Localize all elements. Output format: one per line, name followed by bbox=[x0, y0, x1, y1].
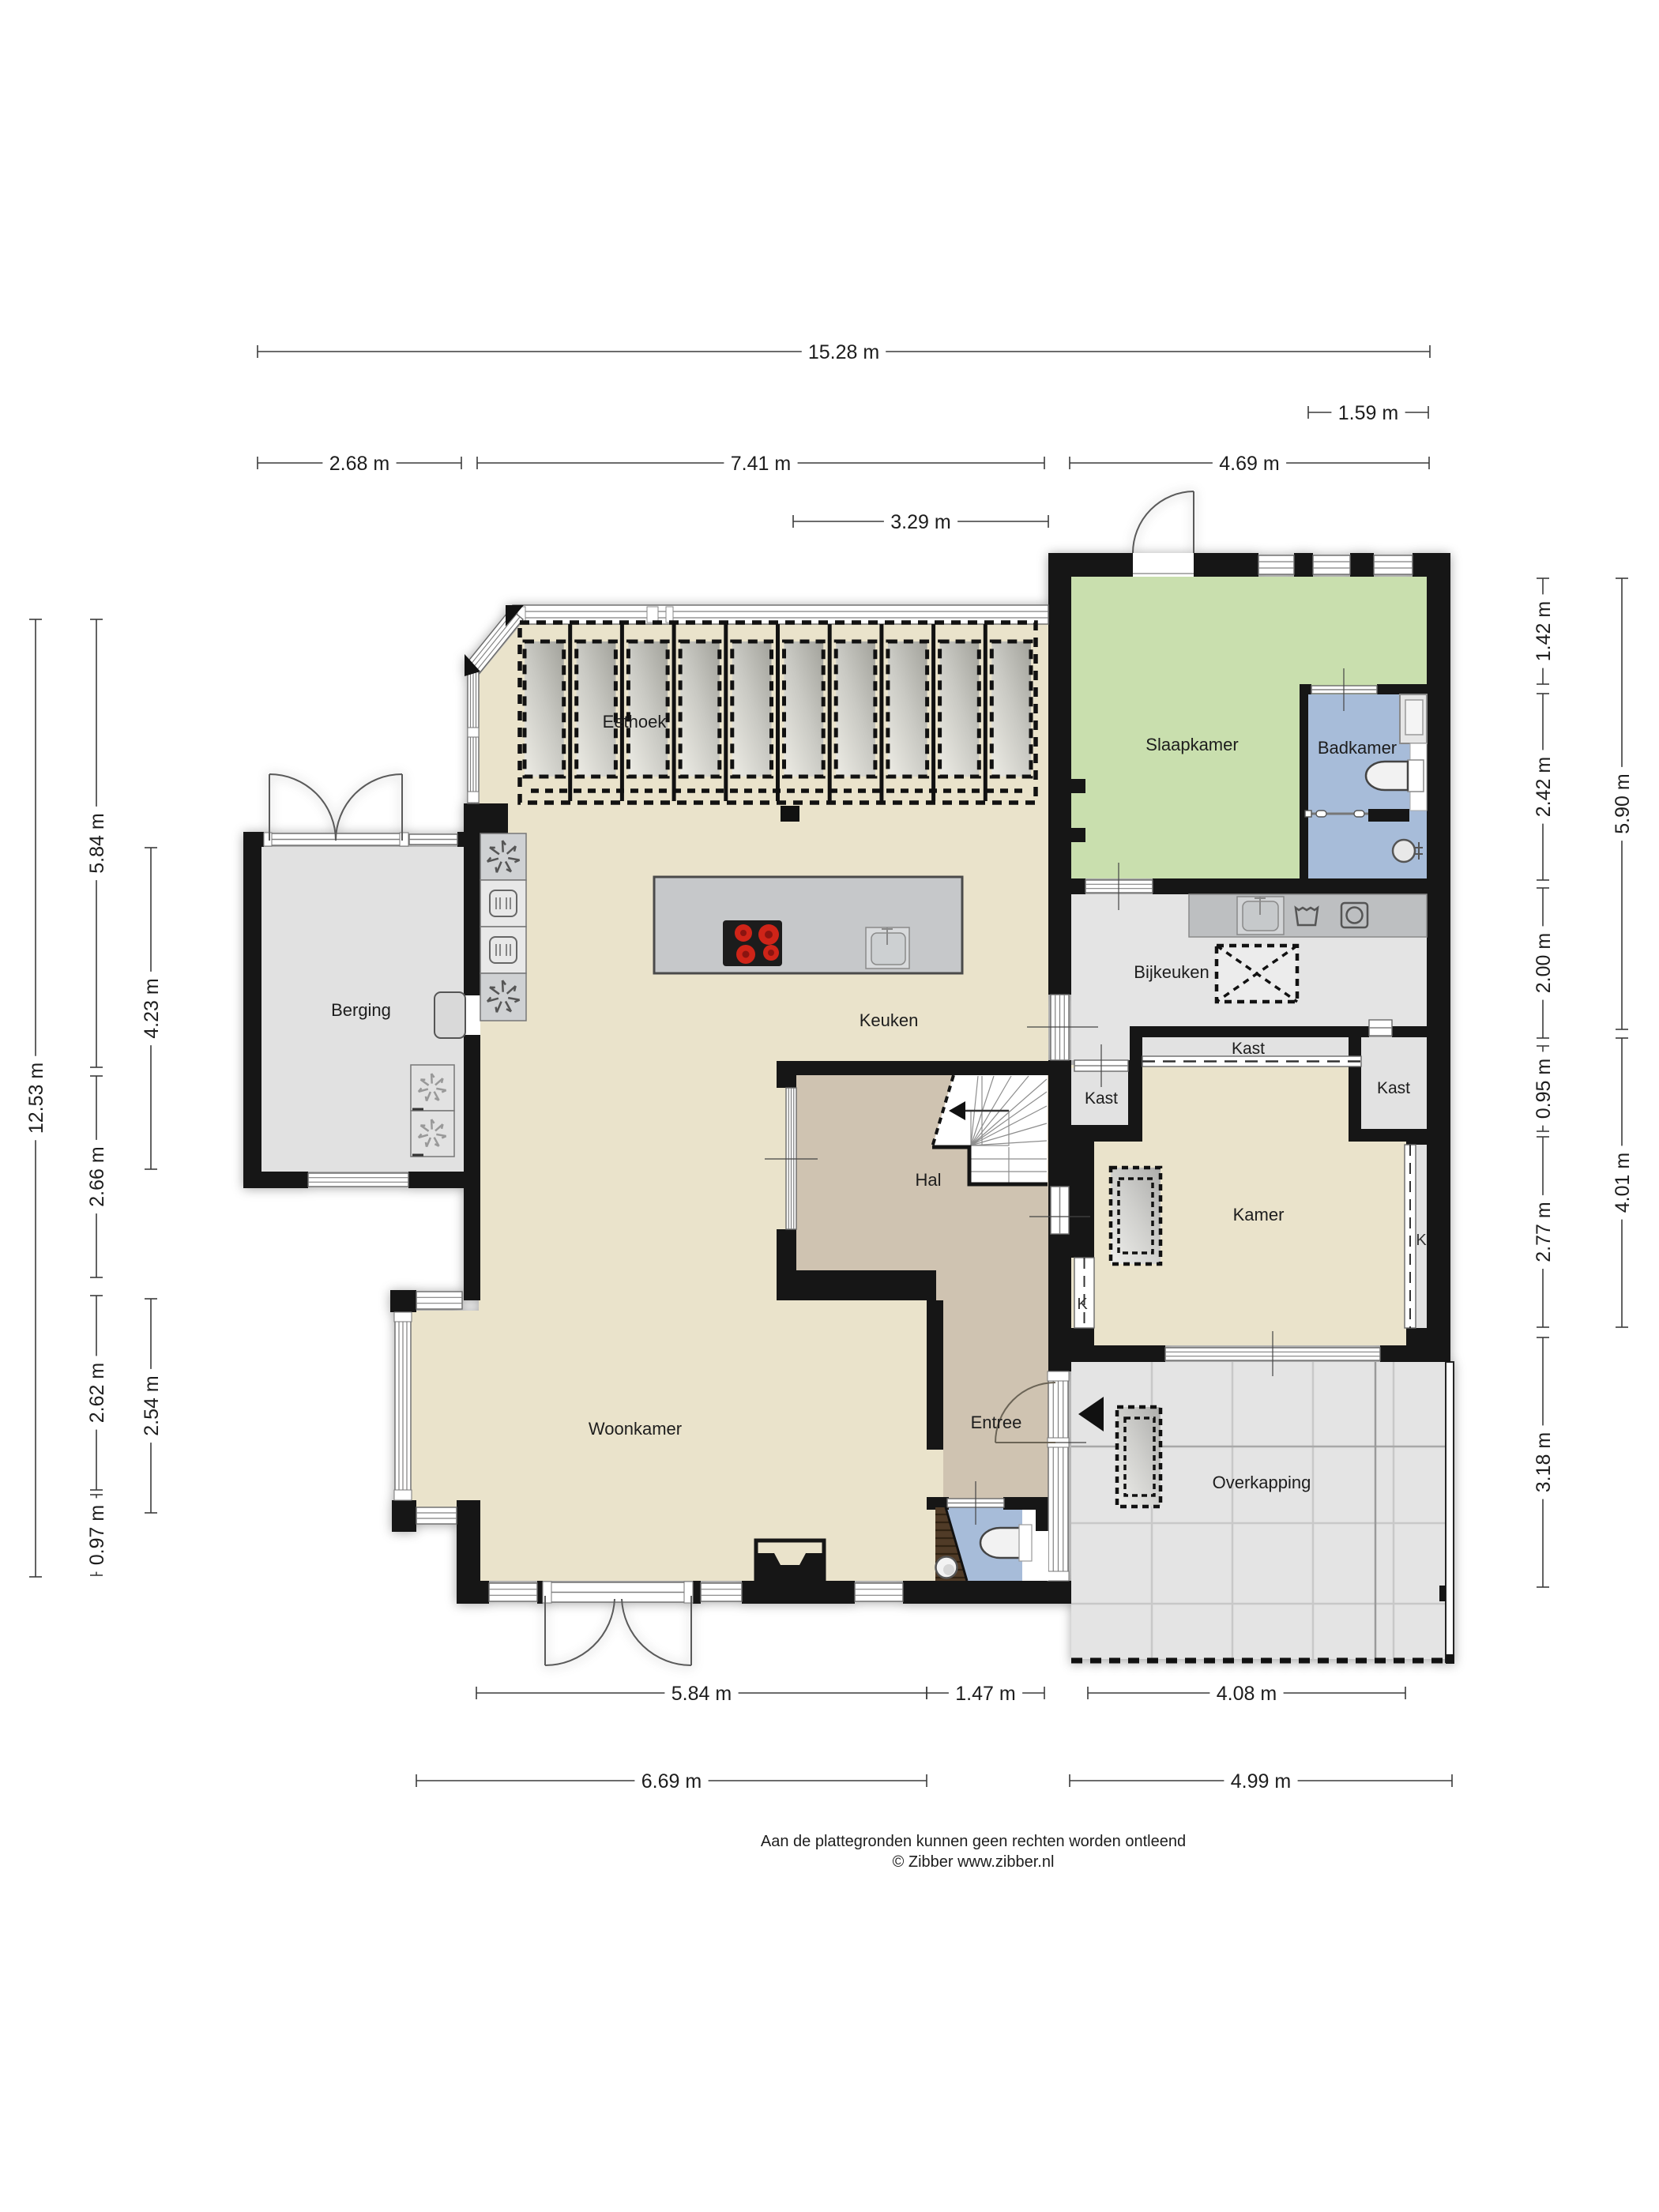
svg-text:2.68 m: 2.68 m bbox=[329, 453, 389, 475]
svg-text:K: K bbox=[1077, 1296, 1088, 1313]
svg-text:5.90 m: 5.90 m bbox=[1612, 773, 1634, 833]
svg-text:Overkapping: Overkapping bbox=[1213, 1473, 1311, 1492]
svg-text:2.54 m: 2.54 m bbox=[141, 1375, 163, 1435]
svg-text:Eethoek: Eethoek bbox=[603, 712, 668, 732]
svg-text:Kast: Kast bbox=[1085, 1089, 1118, 1108]
svg-text:Hal: Hal bbox=[915, 1170, 941, 1190]
svg-text:0.95 m: 0.95 m bbox=[1533, 1059, 1555, 1119]
svg-text:3.18 m: 3.18 m bbox=[1533, 1432, 1555, 1492]
svg-text:2.66 m: 2.66 m bbox=[86, 1146, 108, 1206]
svg-text:Woonkamer: Woonkamer bbox=[589, 1419, 682, 1439]
svg-text:Bijkeuken: Bijkeuken bbox=[1134, 962, 1209, 982]
svg-text:2.62 m: 2.62 m bbox=[86, 1363, 108, 1423]
svg-text:K: K bbox=[1416, 1232, 1427, 1249]
svg-text:1.47 m: 1.47 m bbox=[955, 1683, 1015, 1705]
svg-text:2.42 m: 2.42 m bbox=[1533, 757, 1555, 817]
svg-text:3.29 m: 3.29 m bbox=[890, 511, 950, 533]
svg-text:15.28 m: 15.28 m bbox=[808, 341, 879, 363]
svg-text:Keuken: Keuken bbox=[860, 1010, 919, 1030]
svg-text:4.69 m: 4.69 m bbox=[1219, 453, 1279, 475]
svg-text:2.77 m: 2.77 m bbox=[1533, 1202, 1555, 1262]
svg-text:Kamer: Kamer bbox=[1233, 1205, 1285, 1224]
svg-text:12.53 m: 12.53 m bbox=[25, 1063, 47, 1134]
svg-text:2.00 m: 2.00 m bbox=[1533, 933, 1555, 993]
svg-text:Berging: Berging bbox=[331, 1000, 391, 1020]
svg-text:4.99 m: 4.99 m bbox=[1231, 1770, 1291, 1793]
svg-text:Aan de plattegronden kunnen ge: Aan de plattegronden kunnen geen rechten… bbox=[761, 1833, 1186, 1850]
svg-text:4.08 m: 4.08 m bbox=[1217, 1683, 1277, 1705]
svg-text:Entree: Entree bbox=[971, 1413, 1022, 1432]
svg-text:5.84 m: 5.84 m bbox=[86, 813, 108, 873]
svg-text:1.42 m: 1.42 m bbox=[1533, 601, 1555, 661]
svg-text:6.69 m: 6.69 m bbox=[641, 1770, 702, 1793]
svg-text:Kast: Kast bbox=[1232, 1040, 1265, 1058]
svg-text:1.59 m: 1.59 m bbox=[1338, 402, 1398, 424]
svg-text:0.97 m: 0.97 m bbox=[86, 1505, 108, 1565]
svg-text:© Zibber www.zibber.nl: © Zibber www.zibber.nl bbox=[893, 1853, 1055, 1871]
svg-text:Slaapkamer: Slaapkamer bbox=[1145, 735, 1238, 754]
svg-text:Kast: Kast bbox=[1377, 1079, 1410, 1097]
svg-text:4.01 m: 4.01 m bbox=[1612, 1153, 1634, 1213]
svg-text:Badkamer: Badkamer bbox=[1318, 738, 1397, 758]
svg-text:5.84 m: 5.84 m bbox=[671, 1683, 732, 1705]
svg-text:4.23 m: 4.23 m bbox=[141, 978, 163, 1038]
svg-text:7.41 m: 7.41 m bbox=[731, 453, 791, 475]
